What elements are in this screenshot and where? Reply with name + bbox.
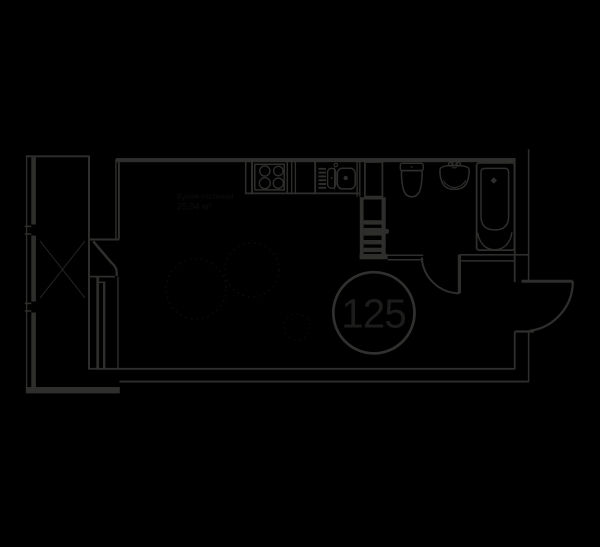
svg-text:25,94 м²: 25,94 м²: [177, 202, 211, 212]
svg-text:125: 125: [341, 291, 406, 337]
svg-text:Кухня-гостиная: Кухня-гостиная: [177, 192, 234, 201]
